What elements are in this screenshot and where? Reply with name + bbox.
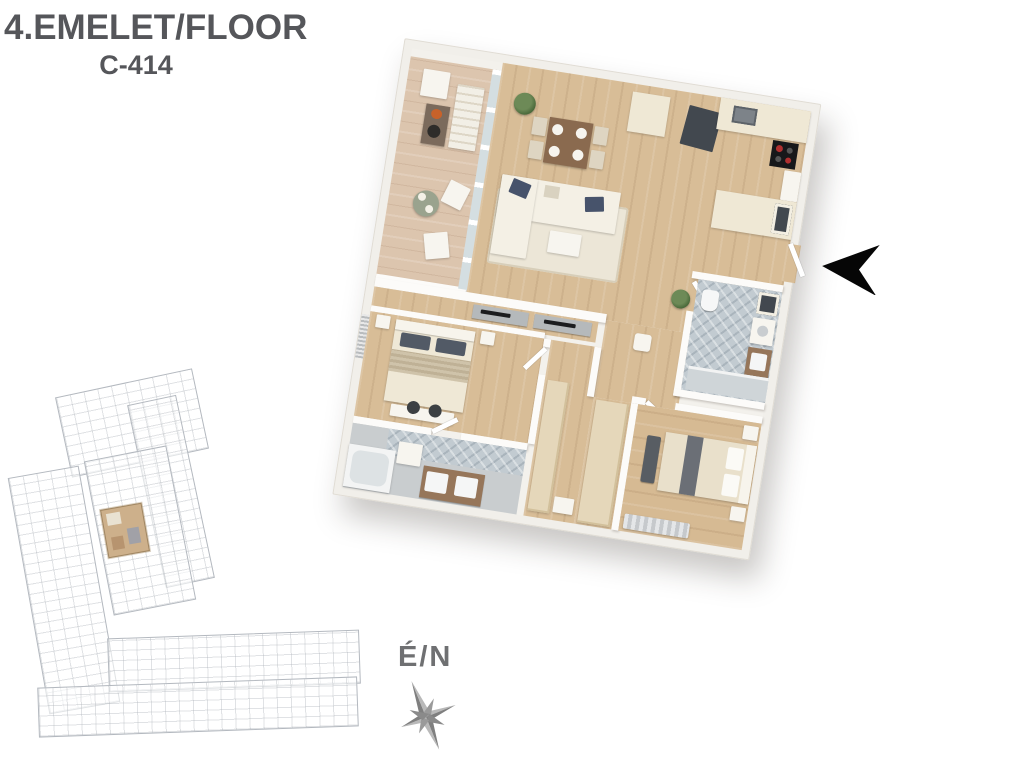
burner (775, 156, 782, 163)
basin (454, 476, 479, 499)
dining-table (543, 117, 594, 169)
apartment-floorplan-3d (428, 62, 812, 551)
pillow (399, 332, 431, 351)
burner (775, 145, 783, 153)
decor-object (480, 309, 510, 318)
plate (575, 127, 588, 140)
sofa-pillow (543, 185, 560, 199)
compass-label: É/N (398, 641, 452, 674)
bed-runner (679, 435, 704, 496)
outdoor-armchair (420, 69, 451, 100)
site-unit-room-mark (127, 527, 142, 545)
page-title: 4.EMELET/FLOOR (4, 8, 307, 48)
shoe-bench (552, 496, 574, 515)
washer-door (756, 325, 769, 338)
dining-chair (589, 150, 606, 170)
bathtub (343, 443, 396, 493)
decor-object (544, 319, 576, 328)
site-unit-room-mark (111, 535, 125, 550)
nightstand (742, 425, 759, 441)
nightstand (480, 331, 496, 346)
compass-rose-icon (384, 674, 468, 760)
pillow (435, 338, 467, 357)
coffee-table (547, 230, 582, 257)
tray-decor (426, 124, 441, 139)
plate (572, 149, 585, 162)
dining-chair (531, 116, 548, 136)
bathroom-cabinet (396, 441, 423, 466)
vanity (744, 347, 772, 378)
dining-chair (592, 126, 609, 146)
pillow (725, 447, 744, 471)
kitchen-sink (731, 105, 757, 126)
storage-nook (756, 292, 780, 317)
washing-machine (749, 317, 776, 346)
plate (551, 123, 564, 136)
cooktop (769, 140, 799, 170)
bed-1 (384, 319, 476, 413)
plate (548, 145, 561, 158)
floorplan-sheet: 4.EMELET/FLOOR C-414 (0, 0, 1013, 760)
site-unit-room-mark (106, 512, 122, 526)
unit-code: C-414 (0, 50, 272, 81)
site-wing-bottom-lower (37, 676, 359, 737)
basin (424, 471, 449, 494)
plate (417, 192, 426, 201)
basin (749, 352, 767, 371)
dining-chair (527, 140, 544, 160)
flower-decor (430, 108, 442, 120)
kitchen-island (627, 91, 671, 136)
burner (786, 147, 793, 154)
pouf (633, 333, 652, 352)
entrance-arrow-icon (822, 243, 880, 295)
site-unit-highlight (100, 503, 150, 559)
nightstand (375, 314, 391, 329)
pillow (721, 473, 740, 497)
tub-basin (348, 449, 390, 487)
burner (785, 157, 792, 164)
plate (425, 204, 434, 213)
nightstand (729, 506, 746, 522)
sofa-pillow (585, 197, 604, 212)
outdoor-chair (423, 232, 449, 260)
